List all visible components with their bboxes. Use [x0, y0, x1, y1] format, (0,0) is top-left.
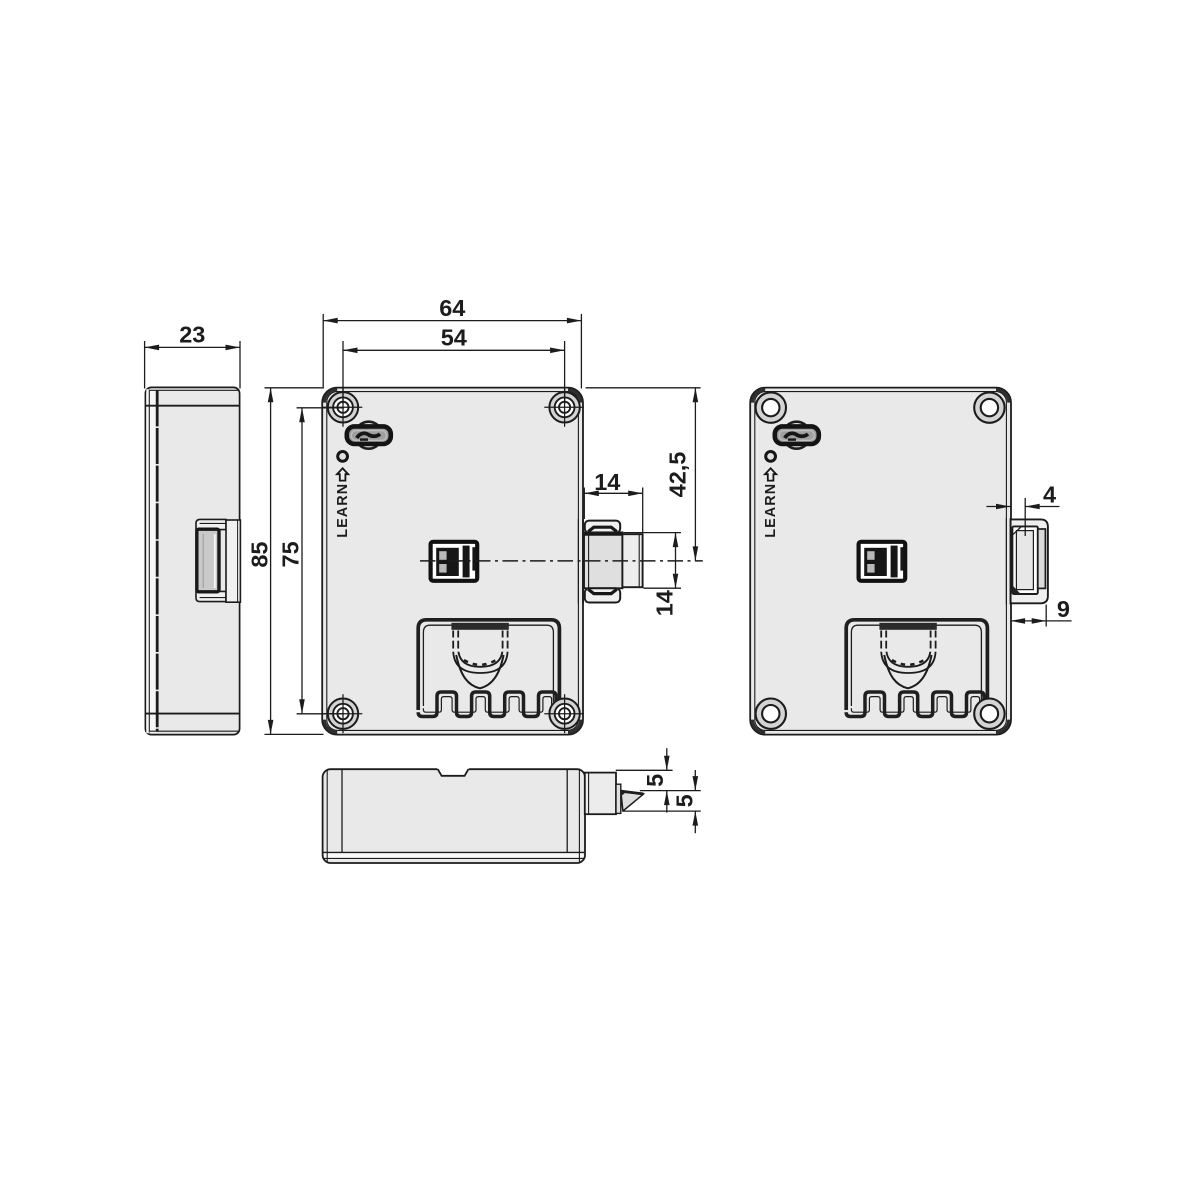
svg-text:LEARN: LEARN — [763, 483, 779, 538]
svg-text:4: 4 — [1043, 482, 1056, 508]
svg-text:75: 75 — [278, 541, 304, 567]
svg-text:5: 5 — [642, 774, 668, 787]
svg-text:85: 85 — [246, 542, 272, 568]
svg-text:14: 14 — [594, 469, 620, 495]
svg-text:42,5: 42,5 — [665, 452, 691, 498]
svg-text:64: 64 — [439, 295, 465, 321]
svg-text:LEARN: LEARN — [335, 483, 351, 538]
svg-text:5: 5 — [672, 794, 698, 807]
svg-text:14: 14 — [652, 590, 678, 616]
svg-text:23: 23 — [179, 322, 205, 348]
svg-text:54: 54 — [441, 325, 467, 351]
svg-text:9: 9 — [1057, 596, 1070, 622]
